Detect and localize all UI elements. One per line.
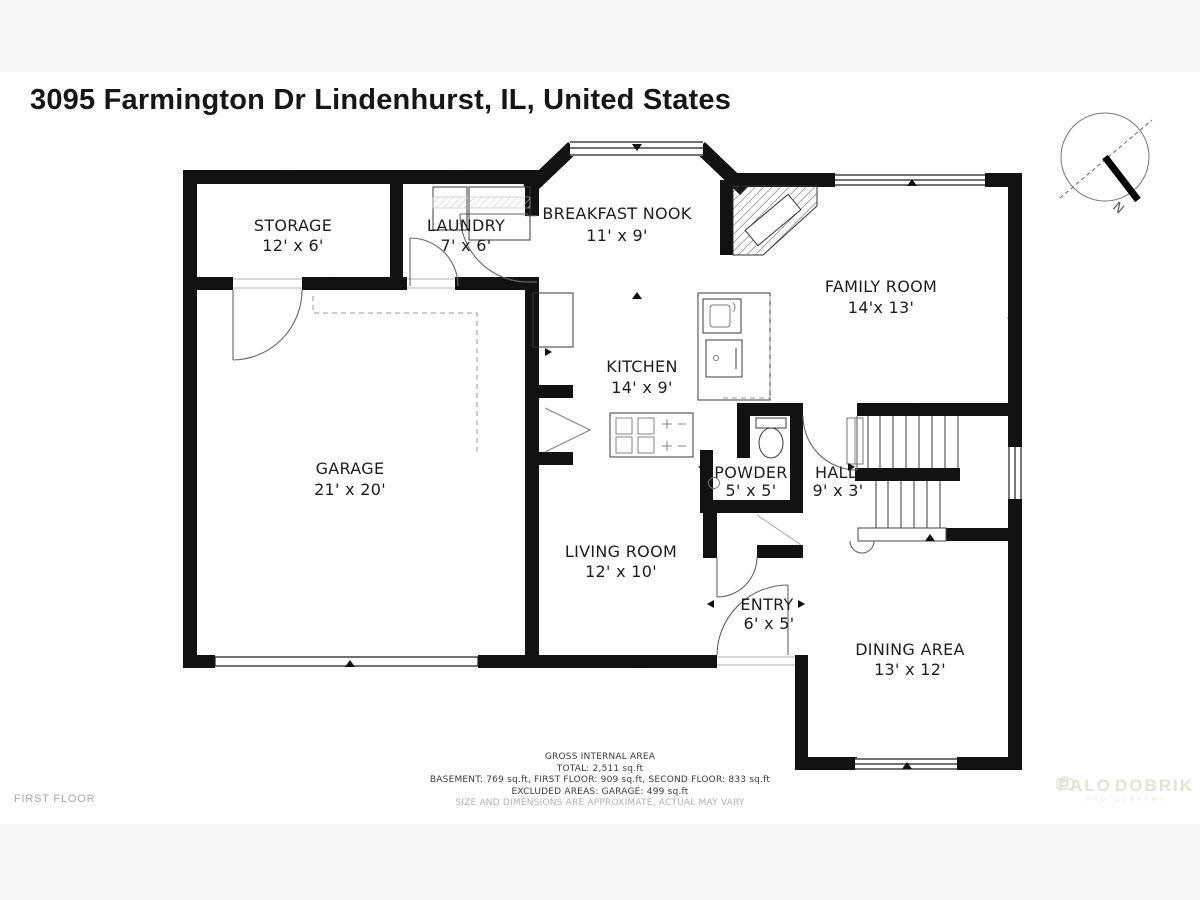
watermark-subtitle: PHOTOGRAPHY xyxy=(1056,797,1196,803)
svg-text:21' x 20': 21' x 20' xyxy=(314,480,386,499)
counter xyxy=(698,293,770,400)
oven xyxy=(706,340,742,377)
svg-text:LIVING ROOM: LIVING ROOM xyxy=(565,542,677,561)
svg-text:ENTRY: ENTRY xyxy=(740,595,793,614)
svg-text:FAMILY ROOM: FAMILY ROOM xyxy=(825,277,937,296)
toilet-bowl xyxy=(759,428,783,458)
floor-level-label: FIRST FLOOR xyxy=(14,793,95,805)
svg-text:12' x 6': 12' x 6' xyxy=(262,236,323,255)
svg-text:POWDER: POWDER xyxy=(714,463,787,482)
fireplace xyxy=(733,186,817,255)
svg-text:BREAKFAST NOOK: BREAKFAST NOOK xyxy=(542,204,691,223)
svg-text:6' x 5': 6' x 5' xyxy=(744,614,795,633)
room-label-laundry: LAUNDRY 7' x 6' xyxy=(427,216,505,255)
room-label-living-room: LIVING ROOM 12' x 10' xyxy=(565,542,677,581)
range xyxy=(610,413,693,457)
svg-text:14'x 13': 14'x 13' xyxy=(848,298,914,317)
svg-text:LAUNDRY: LAUNDRY xyxy=(427,216,505,235)
sink xyxy=(703,299,741,333)
area-summary: GROSS INTERNAL AREA TOTAL: 2,511 sq.ft B… xyxy=(0,752,1200,810)
pantry-door xyxy=(545,408,590,452)
svg-text:KITCHEN: KITCHEN xyxy=(606,357,677,376)
garage-entry-door xyxy=(233,290,302,360)
side-window xyxy=(1007,447,1023,499)
room-label-dining-area: DINING AREA 13' x 12' xyxy=(855,640,965,679)
svg-text:GARAGE: GARAGE xyxy=(316,459,385,478)
photographer-watermark: PALO DOBRIK PHOTOGRAPHY xyxy=(1056,776,1196,803)
svg-text:5' x 5': 5' x 5' xyxy=(726,481,777,500)
svg-text:12' x 10': 12' x 10' xyxy=(585,562,657,581)
svg-text:HALL: HALL xyxy=(815,463,857,482)
room-label-garage: GARAGE 21' x 20' xyxy=(314,459,386,499)
svg-text:14' x 9': 14' x 9' xyxy=(611,378,672,397)
svg-text:STORAGE: STORAGE xyxy=(254,216,332,235)
room-label-breakfast-nook: BREAKFAST NOOK 11' x 9' xyxy=(542,204,691,245)
total-area: TOTAL: 2,511 sq.ft xyxy=(0,764,1200,776)
staircase xyxy=(850,416,958,553)
gross-area-heading: GROSS INTERNAL AREA xyxy=(0,752,1200,764)
compass-north-label: N xyxy=(1109,200,1126,218)
disclaimer: SIZE AND DIMENSIONS ARE APPROXIMATE, ACT… xyxy=(0,798,1200,810)
svg-text:DINING AREA: DINING AREA xyxy=(855,640,965,659)
compass-icon: N xyxy=(1060,113,1152,217)
dashed-lines xyxy=(313,296,770,455)
room-label-powder: POWDER 5' x 5' xyxy=(714,463,787,500)
room-label-entry: ENTRY 6' x 5' xyxy=(740,595,794,633)
excluded-areas: EXCLUDED AREAS: GARAGE: 499 sq.ft xyxy=(0,787,1200,799)
compass-needle xyxy=(1105,157,1138,200)
stair-rail-opening xyxy=(847,418,863,464)
room-label-hall: HALL 9' x 3' xyxy=(813,463,864,500)
room-label-family-room: FAMILY ROOM 14'x 13' xyxy=(825,277,937,317)
room-label-storage: STORAGE 12' x 6' xyxy=(254,216,332,255)
svg-text:9' x 3': 9' x 3' xyxy=(813,481,864,500)
toilet-tank xyxy=(756,418,786,428)
watermark-brand-right: DOBRIK xyxy=(1115,776,1194,796)
floor-areas: BASEMENT: 769 sq.ft, FIRST FLOOR: 909 sq… xyxy=(0,775,1200,787)
svg-text:11' x 9': 11' x 9' xyxy=(586,226,647,245)
room-label-kitchen: KITCHEN 14' x 9' xyxy=(606,357,677,397)
svg-text:7' x 6': 7' x 6' xyxy=(441,236,492,255)
svg-text:13' x 12': 13' x 12' xyxy=(874,660,946,679)
camera-icon xyxy=(1056,776,1074,790)
